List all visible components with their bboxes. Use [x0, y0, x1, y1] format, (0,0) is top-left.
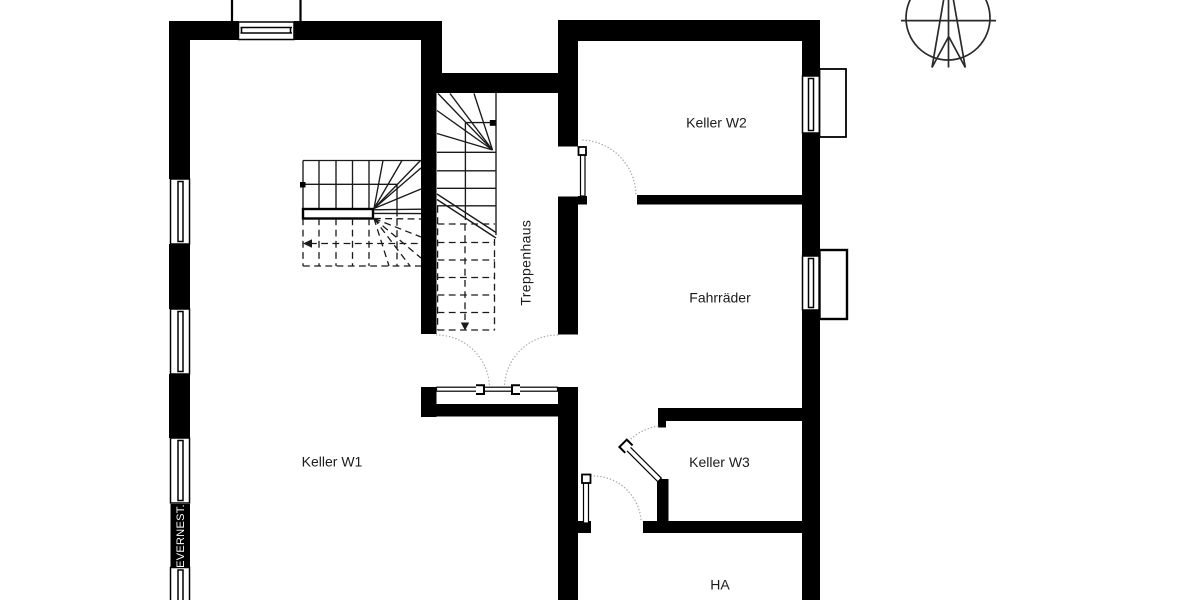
svg-text:EVERNEST.: EVERNEST.: [175, 504, 187, 568]
svg-text:HA: HA: [710, 576, 730, 592]
svg-text:Treppenhaus: Treppenhaus: [518, 220, 534, 306]
svg-text:Fahrräder: Fahrräder: [689, 290, 751, 306]
svg-text:Keller W3: Keller W3: [689, 454, 750, 470]
svg-text:Keller W1: Keller W1: [302, 454, 363, 470]
svg-text:Keller W2: Keller W2: [686, 115, 747, 131]
